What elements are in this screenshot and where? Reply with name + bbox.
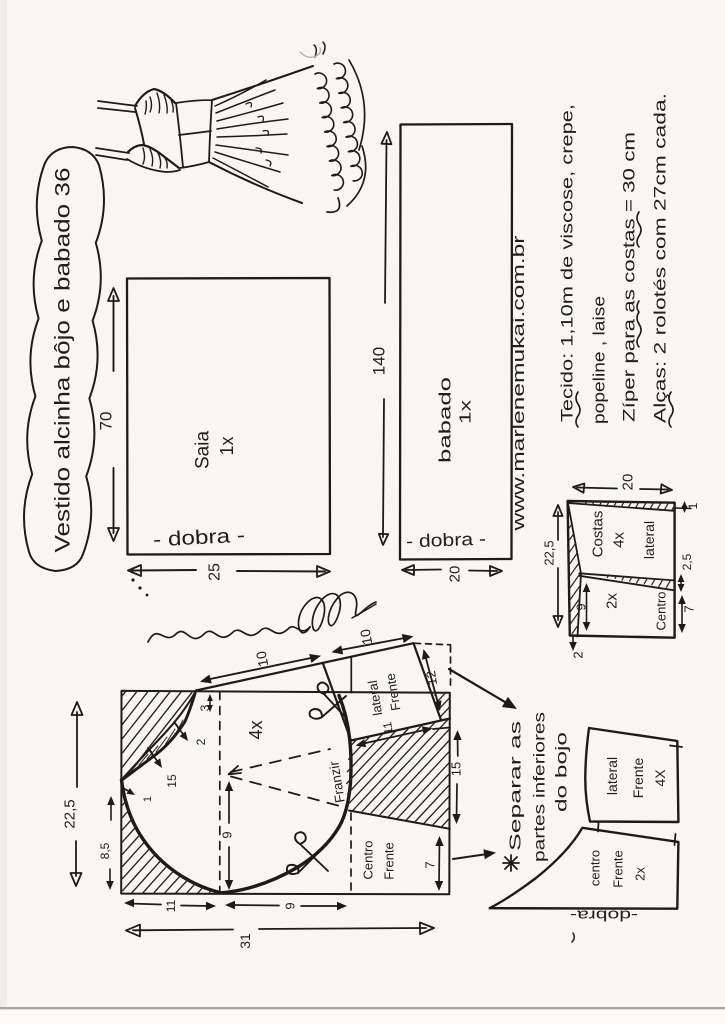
svg-text:20: 20 (620, 474, 637, 491)
svg-text:4X: 4X (652, 769, 668, 787)
svg-text:Tecido: 1,10m de viscose, crep: Tecido: 1,10m de viscose, crepe, (558, 104, 577, 422)
svg-text:22,5: 22,5 (62, 799, 79, 828)
svg-text:Separar as: Separar as (508, 721, 525, 851)
svg-text:2: 2 (194, 738, 208, 745)
svg-text:140: 140 (370, 347, 389, 375)
svg-text:Centro: Centro (361, 840, 376, 879)
svg-text:9: 9 (574, 603, 589, 610)
svg-text:www.marlenemukai.com.br: www.marlenemukai.com.br (510, 235, 528, 532)
svg-text:12: 12 (423, 670, 440, 687)
svg-text:10: 10 (357, 628, 376, 647)
svg-text:Costas: Costas (590, 511, 607, 558)
svg-text:22,5: 22,5 (542, 540, 557, 565)
svg-text:Zíper para as costas = 30 cm: Zíper para as costas = 30 cm (620, 132, 639, 422)
svg-text:7: 7 (423, 861, 438, 868)
svg-text:Vestido alcinha bôjo e babado: Vestido alcinha bôjo e babado 36 (52, 168, 75, 553)
svg-text:8,5: 8,5 (98, 842, 112, 859)
svg-text:4x: 4x (246, 720, 266, 739)
svg-text:lateral: lateral (604, 757, 620, 795)
svg-text:popeline , laise: popeline , laise (590, 296, 609, 424)
svg-text:1: 1 (686, 502, 700, 509)
svg-text:70: 70 (97, 412, 116, 431)
svg-text:Frente: Frente (382, 842, 397, 880)
svg-text:Frente: Frente (630, 758, 646, 799)
svg-text:2x: 2x (604, 593, 621, 609)
svg-text:Saia: Saia (193, 431, 214, 469)
svg-text:15: 15 (449, 762, 464, 776)
svg-text:2: 2 (571, 651, 586, 658)
svg-text:31: 31 (237, 933, 253, 949)
svg-text:Alças: 2 rolotés com 27cm cada: Alças: 2 rolotés com 27cm cada. (651, 93, 670, 423)
svg-text:15: 15 (165, 774, 179, 788)
svg-text:do bojo: do bojo (554, 732, 571, 812)
svg-text:lateral: lateral (641, 521, 657, 559)
svg-text:3: 3 (198, 704, 212, 711)
svg-text:20: 20 (447, 566, 464, 583)
svg-text:babado: babado (436, 377, 455, 463)
svg-text:1: 1 (142, 796, 154, 802)
svg-text:Frente: Frente (611, 850, 626, 888)
svg-text:2,5: 2,5 (680, 553, 694, 570)
svg-text:2x: 2x (633, 867, 648, 881)
svg-text:7: 7 (682, 605, 697, 612)
svg-text:-dobra-: -dobra- (570, 907, 638, 924)
svg-text:9: 9 (283, 902, 298, 909)
svg-text:9: 9 (220, 831, 235, 838)
svg-text:25: 25 (207, 563, 224, 581)
svg-text:11: 11 (380, 720, 396, 735)
svg-text:11: 11 (164, 899, 178, 912)
svg-text:Centro: Centro (654, 591, 669, 630)
svg-text:partes inferiores: partes inferiores (532, 712, 549, 862)
svg-text:centro: centro (588, 850, 603, 886)
svg-text:10: 10 (253, 650, 272, 669)
svg-text:1x: 1x (217, 436, 237, 455)
svg-text:- dobra -: - dobra - (406, 529, 487, 552)
svg-text:4x: 4x (611, 532, 628, 548)
svg-text:1x: 1x (458, 400, 475, 424)
